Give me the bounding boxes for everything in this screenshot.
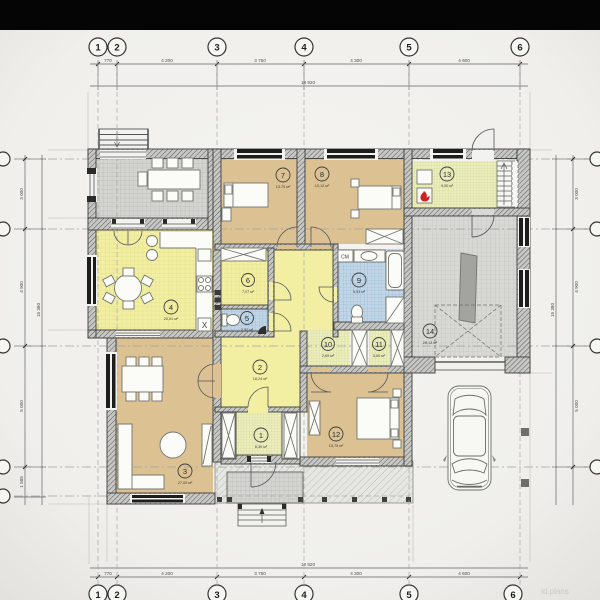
- svg-text:770: 770: [104, 571, 112, 576]
- svg-text:4: 4: [301, 590, 307, 600]
- svg-text:3: 3: [183, 467, 187, 476]
- svg-text:6,30 м²: 6,30 м²: [255, 445, 268, 449]
- svg-text:11: 11: [375, 340, 383, 349]
- svg-text:5 000: 5 000: [574, 400, 579, 412]
- svg-text:3 750: 3 750: [254, 58, 266, 63]
- svg-text:6: 6: [517, 43, 522, 54]
- svg-text:13,79 м²: 13,79 м²: [276, 185, 291, 189]
- svg-text:5: 5: [245, 314, 249, 323]
- svg-text:1: 1: [259, 431, 263, 440]
- svg-text:3 000: 3 000: [19, 188, 24, 200]
- svg-text:2,52 м²: 2,52 м²: [241, 328, 254, 332]
- svg-text:18 920: 18 920: [301, 562, 315, 567]
- svg-text:27,00 м²: 27,00 м²: [178, 481, 193, 485]
- svg-text:28,13 м²: 28,13 м²: [423, 341, 438, 345]
- svg-text:15 380: 15 380: [550, 303, 555, 317]
- svg-text:7,07 м²: 7,07 м²: [242, 290, 255, 294]
- svg-text:5,53 м²: 5,53 м²: [353, 290, 366, 294]
- svg-text:6: 6: [510, 590, 515, 600]
- svg-text:9,00 м²: 9,00 м²: [441, 184, 454, 188]
- svg-text:3: 3: [214, 43, 219, 54]
- svg-text:12: 12: [332, 430, 340, 439]
- svg-text:2: 2: [114, 590, 119, 600]
- svg-text:3 750: 3 750: [254, 571, 266, 576]
- svg-text:3 000: 3 000: [574, 188, 579, 200]
- svg-text:2,69 м²: 2,69 м²: [322, 354, 335, 358]
- svg-text:4 600: 4 600: [458, 58, 470, 63]
- svg-text:10: 10: [324, 340, 332, 349]
- svg-text:15 380: 15 380: [36, 303, 41, 317]
- svg-text:14: 14: [426, 327, 434, 336]
- svg-text:8: 8: [320, 170, 324, 179]
- svg-text:3,60 м²: 3,60 м²: [373, 354, 386, 358]
- svg-text:4: 4: [301, 43, 307, 54]
- svg-text:1 585: 1 585: [19, 476, 24, 488]
- svg-text:5: 5: [406, 590, 412, 600]
- svg-text:3: 3: [214, 590, 219, 600]
- svg-text:4 200: 4 200: [161, 58, 173, 63]
- svg-text:id.plans: id.plans: [541, 587, 569, 596]
- svg-text:1: 1: [95, 43, 101, 54]
- svg-text:770: 770: [104, 58, 112, 63]
- svg-text:18,24 м²: 18,24 м²: [253, 377, 268, 381]
- svg-text:9: 9: [357, 276, 361, 285]
- svg-text:4 900: 4 900: [19, 281, 24, 293]
- svg-text:1: 1: [95, 590, 101, 600]
- svg-text:4 900: 4 900: [574, 281, 579, 293]
- svg-text:5 000: 5 000: [19, 400, 24, 412]
- svg-text:20,51 м²: 20,51 м²: [164, 317, 179, 321]
- svg-text:15,12 м²: 15,12 м²: [315, 184, 330, 188]
- svg-text:5: 5: [406, 43, 412, 54]
- svg-text:13: 13: [443, 170, 451, 179]
- svg-text:15,75 м²: 15,75 м²: [329, 444, 344, 448]
- svg-text:4 600: 4 600: [458, 571, 470, 576]
- svg-text:4 200: 4 200: [161, 571, 173, 576]
- svg-text:4 300: 4 300: [350, 58, 362, 63]
- svg-text:4: 4: [169, 303, 173, 312]
- svg-text:4 300: 4 300: [350, 571, 362, 576]
- svg-text:2: 2: [258, 363, 262, 372]
- svg-text:2: 2: [114, 43, 119, 54]
- svg-text:6: 6: [246, 276, 250, 285]
- svg-text:7: 7: [281, 171, 285, 180]
- svg-text:X: X: [202, 321, 208, 330]
- svg-text:CM: CM: [341, 255, 349, 261]
- svg-text:18 920: 18 920: [301, 80, 315, 85]
